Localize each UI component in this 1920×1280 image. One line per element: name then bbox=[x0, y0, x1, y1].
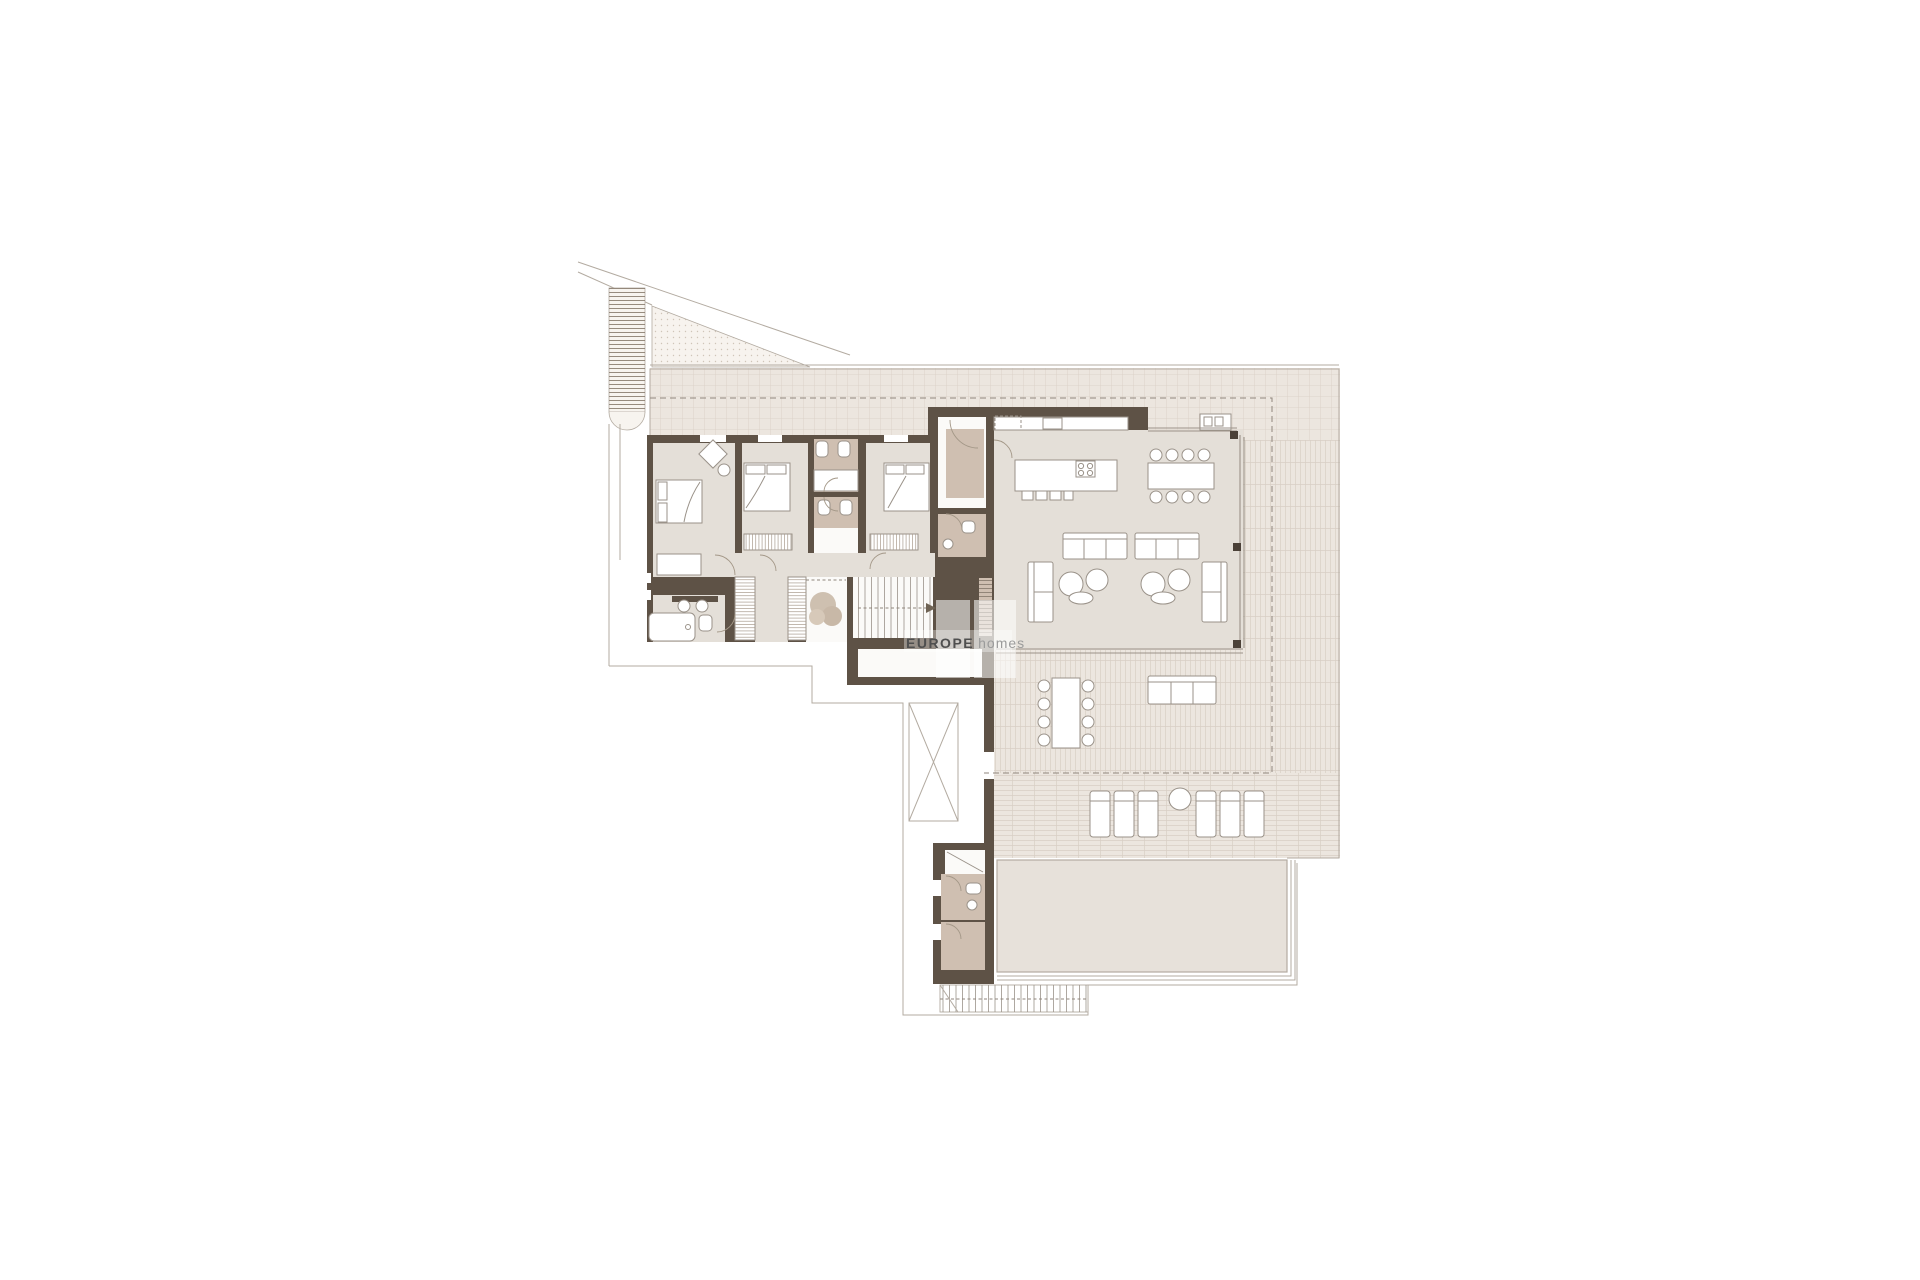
window-north-3 bbox=[884, 435, 908, 442]
bed-icon bbox=[884, 463, 929, 511]
outdoor-chair bbox=[1082, 734, 1094, 746]
window-north-2 bbox=[758, 435, 782, 442]
dining-chair bbox=[1166, 449, 1178, 461]
pool bbox=[997, 860, 1287, 972]
window-pool-bath-1 bbox=[933, 880, 941, 896]
desk-icon bbox=[657, 554, 701, 575]
outdoor-chair bbox=[1038, 680, 1050, 692]
sun-lounger bbox=[1196, 791, 1216, 837]
pool-shower bbox=[941, 922, 985, 970]
kitchen-island bbox=[1015, 460, 1117, 491]
window-west-1 bbox=[643, 573, 651, 583]
bar-stool-icon bbox=[1050, 491, 1061, 500]
sun-lounger bbox=[1138, 791, 1158, 837]
dining-chair bbox=[1150, 491, 1162, 503]
column bbox=[1233, 640, 1241, 648]
outdoor-chair bbox=[1082, 698, 1094, 710]
window-pool-bath-2 bbox=[933, 924, 941, 940]
wardrobe-hatch bbox=[735, 577, 755, 640]
pool-deck-tiles bbox=[993, 773, 1340, 858]
vanity-counter bbox=[672, 596, 718, 602]
sink-icon bbox=[967, 900, 977, 910]
dining-chair bbox=[1198, 491, 1210, 503]
bathroom-2-shower bbox=[814, 528, 858, 553]
sink-icon bbox=[696, 600, 708, 612]
watermark-text: EUROPEhomes bbox=[906, 635, 1025, 651]
walk-in-closet bbox=[755, 577, 788, 642]
bed-icon bbox=[656, 480, 702, 523]
sink-icon bbox=[943, 539, 953, 549]
window-west-2 bbox=[643, 590, 651, 600]
dining-table bbox=[1148, 463, 1214, 489]
dining-chair bbox=[1166, 491, 1178, 503]
wardrobe-hatch bbox=[788, 577, 806, 640]
outdoor-chair bbox=[1038, 734, 1050, 746]
guest-wc bbox=[938, 514, 986, 557]
outdoor-chair bbox=[1038, 716, 1050, 728]
vanity-icon bbox=[814, 470, 858, 491]
toilet-icon bbox=[816, 441, 828, 457]
bathtub-icon bbox=[649, 613, 695, 641]
bar-stool-icon bbox=[1022, 491, 1033, 500]
watermark-brand-bold: EUROPE bbox=[906, 635, 974, 651]
stairs-treads bbox=[853, 577, 933, 638]
outdoor-chair bbox=[1082, 716, 1094, 728]
bidet-icon bbox=[838, 441, 850, 457]
sink-icon bbox=[1043, 418, 1062, 429]
sink-icon bbox=[678, 600, 690, 612]
column bbox=[1233, 543, 1241, 551]
side-table-icon bbox=[718, 464, 730, 476]
loveseat-icon bbox=[1028, 562, 1053, 622]
sun-lounger bbox=[1244, 791, 1264, 837]
site-boundary-left bbox=[609, 424, 620, 666]
sun-lounger bbox=[1114, 791, 1134, 837]
outdoor-sofa-icon bbox=[1148, 676, 1216, 704]
site-ladder-hatch bbox=[609, 288, 645, 412]
bar-stool-icon bbox=[1064, 491, 1073, 500]
dining-chair bbox=[1150, 449, 1162, 461]
toilet-icon bbox=[966, 883, 981, 894]
pool-wc bbox=[941, 874, 985, 920]
outdoor-chair bbox=[1038, 698, 1050, 710]
dining-chair bbox=[1182, 491, 1194, 503]
entry-rug bbox=[946, 429, 984, 498]
watermark-brand-light: homes bbox=[978, 635, 1025, 651]
dining-chair bbox=[1198, 449, 1210, 461]
dining-chair bbox=[1182, 449, 1194, 461]
hallway bbox=[718, 553, 935, 577]
garden-stairs-treads bbox=[940, 985, 1088, 1012]
toilet-icon bbox=[962, 521, 975, 533]
terrace-door-gap bbox=[984, 752, 994, 779]
floor-plan-page: EUROPEhomes bbox=[0, 0, 1920, 1280]
sun-lounger bbox=[1090, 791, 1110, 837]
outdoor-chair bbox=[1082, 680, 1094, 692]
sofa-icon bbox=[1135, 533, 1199, 559]
south-terrace-tiles bbox=[993, 650, 1240, 773]
outdoor-dining-table bbox=[1052, 678, 1080, 748]
loveseat-icon bbox=[1202, 562, 1227, 622]
column bbox=[1230, 431, 1238, 439]
dresser-hatch bbox=[744, 534, 792, 550]
patio-table bbox=[1169, 788, 1191, 810]
bidet-icon bbox=[840, 500, 852, 515]
site-ladder-cap bbox=[609, 412, 645, 430]
sofa-icon bbox=[1063, 533, 1127, 559]
toilet-icon bbox=[699, 615, 712, 631]
roof-skylight-triangle bbox=[652, 306, 810, 367]
dresser-hatch bbox=[870, 534, 918, 550]
sun-lounger bbox=[1220, 791, 1240, 837]
bed-icon bbox=[744, 463, 790, 511]
east-terrace-tiles bbox=[1240, 440, 1340, 773]
bar-stool-icon bbox=[1036, 491, 1047, 500]
floor-plan-drawing: EUROPEhomes bbox=[0, 0, 1920, 1280]
